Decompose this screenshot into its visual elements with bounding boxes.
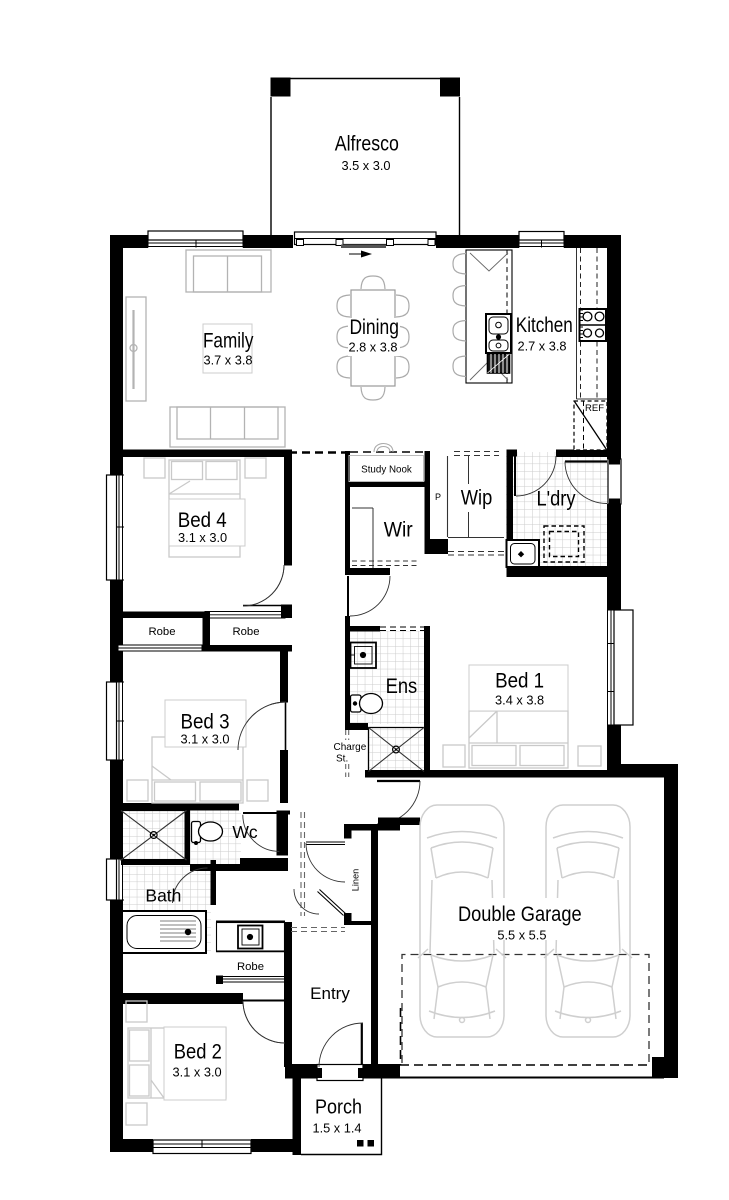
- svg-text:2.8 x 3.8: 2.8 x 3.8: [348, 340, 397, 355]
- svg-text:Robe: Robe: [237, 961, 264, 973]
- svg-text:Double Garage: Double Garage: [458, 903, 582, 926]
- svg-text:Charge: Charge: [334, 742, 367, 753]
- svg-text:St.: St.: [336, 754, 348, 765]
- svg-text:3.5 x 3.0: 3.5 x 3.0: [341, 158, 390, 173]
- svg-text:Entry: Entry: [310, 984, 350, 1003]
- svg-text:Ens: Ens: [386, 675, 418, 698]
- svg-text:3.1 x 3.0: 3.1 x 3.0: [180, 732, 229, 747]
- svg-text:Alfresco: Alfresco: [335, 133, 399, 156]
- svg-text:3.1 x 3.0: 3.1 x 3.0: [173, 1065, 222, 1080]
- svg-text:3.7 x 3.8: 3.7 x 3.8: [203, 353, 252, 368]
- svg-text:Bed 2: Bed 2: [174, 1041, 222, 1064]
- svg-text:Bed 4: Bed 4: [178, 509, 227, 532]
- svg-text:Wc: Wc: [232, 822, 258, 842]
- svg-text:Robe: Robe: [232, 626, 259, 638]
- svg-text:Family: Family: [203, 330, 254, 353]
- svg-text:Linen: Linen: [351, 869, 361, 891]
- svg-text:3.4 x 3.8: 3.4 x 3.8: [495, 693, 544, 708]
- svg-text:L'dry: L'dry: [537, 488, 576, 511]
- svg-text:Bath: Bath: [145, 886, 181, 906]
- svg-text:Bed 1: Bed 1: [495, 670, 544, 693]
- svg-text:5.5 x 5.5: 5.5 x 5.5: [497, 928, 546, 943]
- svg-text:Porch: Porch: [315, 1097, 362, 1119]
- svg-text:Wir: Wir: [384, 519, 413, 542]
- svg-text:Study Nook: Study Nook: [361, 465, 412, 476]
- svg-text:2.7 x 3.8: 2.7 x 3.8: [517, 339, 566, 354]
- svg-text:3.1 x 3.0: 3.1 x 3.0: [178, 530, 227, 545]
- svg-text:REF: REF: [585, 403, 604, 414]
- svg-text:Wip: Wip: [461, 487, 493, 510]
- svg-text:P: P: [435, 492, 441, 502]
- svg-text:Dining: Dining: [349, 316, 399, 339]
- svg-text:Bed 3: Bed 3: [181, 711, 230, 734]
- svg-text:Robe: Robe: [148, 626, 175, 638]
- svg-text:Kitchen: Kitchen: [516, 314, 573, 337]
- svg-text:1.5 x 1.4: 1.5 x 1.4: [312, 1121, 361, 1136]
